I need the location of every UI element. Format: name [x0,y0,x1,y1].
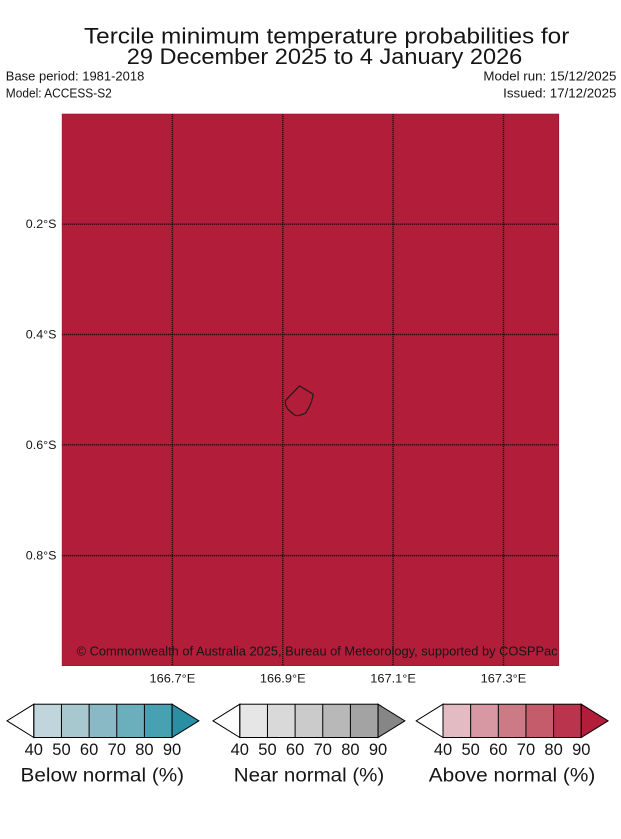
svg-text:167.1°E: 167.1°E [370,671,416,685]
svg-text:40: 40 [434,741,452,759]
svg-text:50: 50 [258,741,276,759]
svg-text:167.3°E: 167.3°E [481,671,527,685]
svg-text:Below normal (%): Below normal (%) [21,766,185,787]
svg-text:0.6°S: 0.6°S [26,438,57,452]
svg-text:Model run: 15/12/2025: Model run: 15/12/2025 [483,68,616,83]
svg-text:0.2°S: 0.2°S [26,217,57,231]
svg-text:166.9°E: 166.9°E [260,671,306,685]
svg-text:166.7°E: 166.7°E [150,671,196,685]
svg-text:40: 40 [231,741,249,759]
svg-text:60: 60 [286,741,304,759]
svg-text:Base period: 1981-2018: Base period: 1981-2018 [6,68,145,83]
svg-text:70: 70 [108,741,126,759]
svg-text:70: 70 [517,741,535,759]
svg-text:80: 80 [341,741,359,759]
svg-text:0.8°S: 0.8°S [26,549,57,563]
svg-text:80: 80 [135,741,153,759]
svg-text:Above normal (%): Above normal (%) [429,766,596,787]
svg-text:90: 90 [369,741,387,759]
svg-text:90: 90 [572,741,590,759]
svg-text:Near normal (%): Near normal (%) [234,766,385,787]
svg-text:Model: ACCESS-S2: Model: ACCESS-S2 [6,86,112,101]
svg-text:© Commonwealth of Australia 20: © Commonwealth of Australia 2025, Bureau… [77,643,559,658]
svg-text:80: 80 [544,741,562,759]
svg-text:60: 60 [80,741,98,759]
svg-text:29 December 2025 to 4 January: 29 December 2025 to 4 January 2026 [127,44,523,69]
svg-text:90: 90 [163,741,181,759]
svg-text:50: 50 [52,741,70,759]
svg-text:Issued: 17/12/2025: Issued: 17/12/2025 [503,86,616,101]
svg-text:60: 60 [489,741,507,759]
svg-text:40: 40 [25,741,43,759]
svg-text:50: 50 [461,741,479,759]
svg-text:0.4°S: 0.4°S [26,328,57,342]
svg-text:70: 70 [314,741,332,759]
